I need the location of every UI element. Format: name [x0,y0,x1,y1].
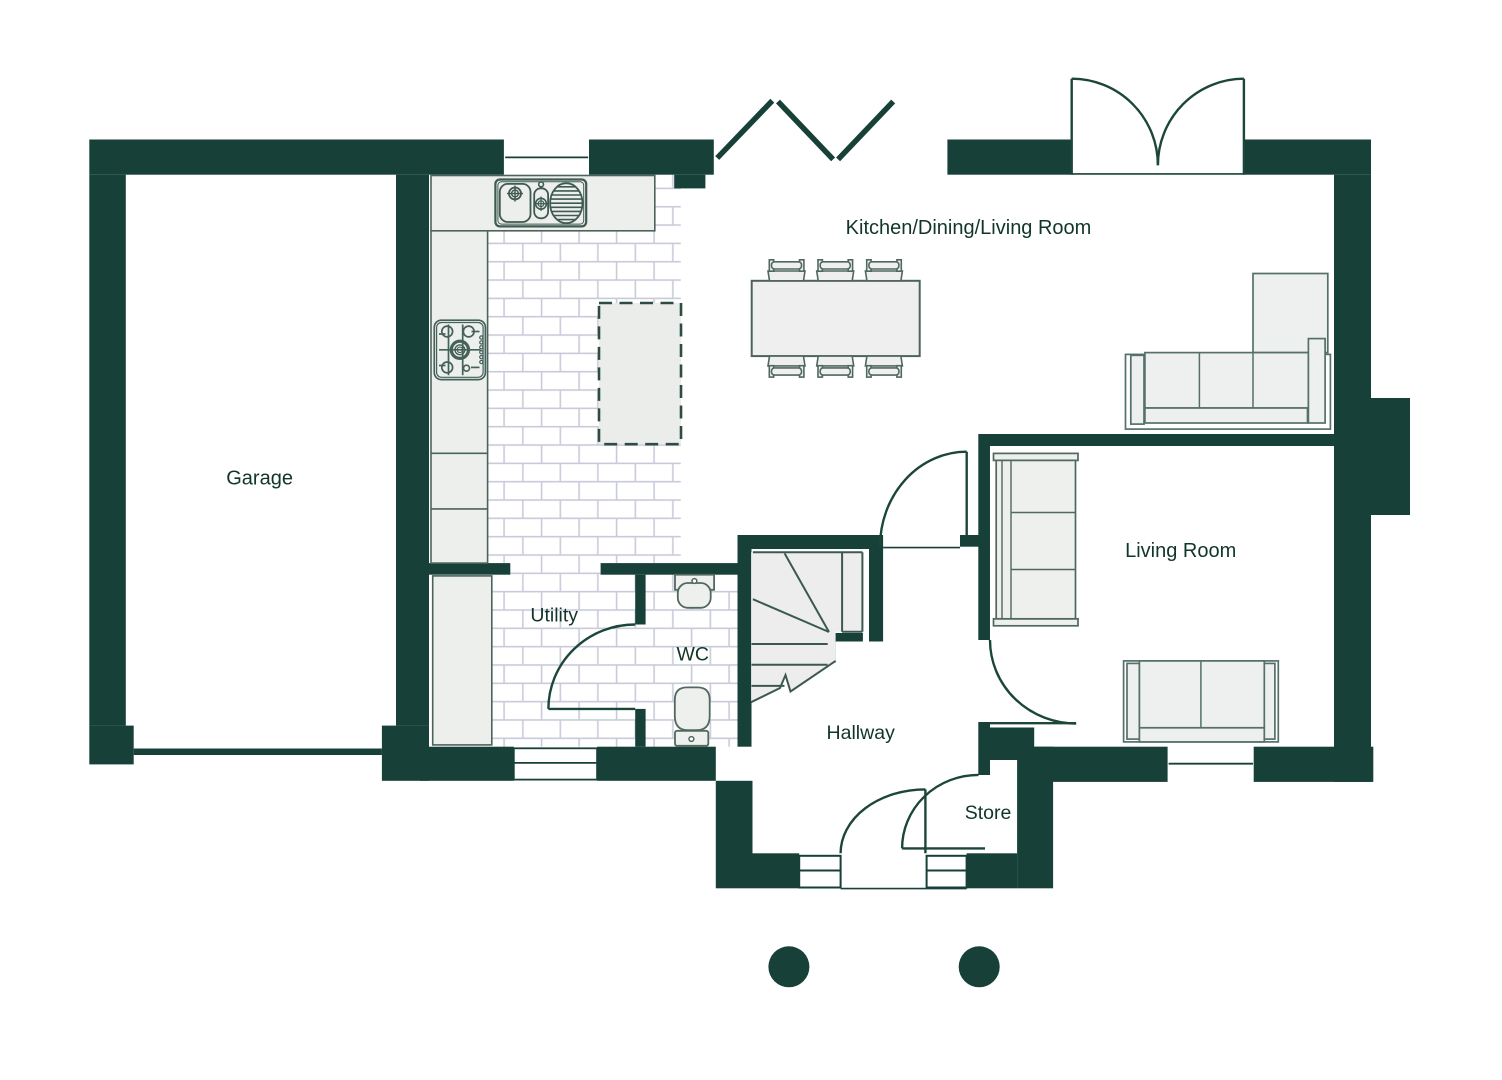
svg-text:Utility: Utility [530,605,578,627]
svg-text:Store: Store [965,802,1012,824]
svg-text:Hallway: Hallway [827,722,896,744]
svg-text:Living Room: Living Room [1125,540,1236,562]
svg-text:Garage: Garage [226,467,293,489]
svg-text:Kitchen/Dining/Living Room: Kitchen/Dining/Living Room [846,217,1092,239]
svg-text:WC: WC [676,644,709,666]
